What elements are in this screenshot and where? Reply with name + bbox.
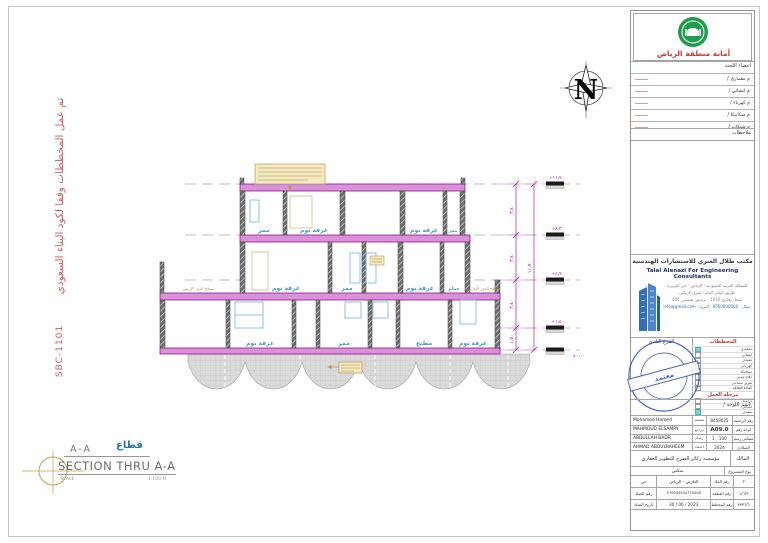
code-compliance-note: تم عمل المخططات وفقا لكود البناء السعودي [54,70,66,322]
parcel-value: ١/٦/٣ [733,488,754,498]
scale-value: 1:100 M [148,477,166,482]
parcel-row: حي العارض - الرياض رقم البلك ٢ [631,476,754,487]
level-markers: +١١٫٧٠ +٨٫٣٠ +٤٫٩٠ +١٫٥٠ ±٠٫٠٠ [546,175,585,359]
municipality-logo-icon [677,16,709,48]
signature-line [635,115,648,116]
room-label: حمام [448,287,459,292]
personnel-row: ABDULLAH BADR رسام 1 : 100 مقياس رسم [631,434,754,443]
person-name: MAHMOUD ELSAMRY [631,426,692,434]
parcel-label: رقم الصك [631,488,656,498]
checklist-label: كفاءة الطاقة [733,386,752,390]
meta-label: لوحة رقم [732,426,754,434]
owner-label: المالك [730,451,754,466]
address-line: المملكة العربية السعودية - الرياض - حي ا… [661,282,753,289]
note-box-mid [370,256,384,265]
owner-row: مؤسسة ركائز الصرح للتطوير العقاري المالك [631,450,754,466]
dimension-lines: ٣٫٤٠ ٣٫٤٠ ٣٫٤٠ ١٫٥٠ ١١٫٧٠ [502,181,538,353]
room-label: ممر [340,285,353,292]
project-type-row: سكني نوع المشروع [631,466,754,475]
project-type-value: سكني [631,467,724,475]
dim-total-text: ١١٫٧٠ [527,261,533,273]
meta-label: رقم الرخصة [732,416,754,425]
person-name: Mohamed Hamed [631,416,692,425]
personnel-row: MAHMOUD ELSAMRY مراجع A09.0 لوحة رقم [631,425,754,434]
sheet-number: A09.0 [706,426,732,434]
sbc-code-ref: SBC-1101 [55,319,65,383]
checklist-label: تقرير مساحي [732,381,752,385]
notes-area [631,140,754,254]
municipality-name: أمانة منطقة الرياض [634,49,753,58]
room-label: ممر [448,229,458,234]
checklist-label: تنفيذي [742,358,752,362]
checklist-label: دفاع مدني [736,375,752,379]
level-text: ±٠٫٠٠ [572,353,585,359]
level-text: +١١٫٧٠ [549,175,564,181]
dim-text: ١٫٥٠ [509,334,515,344]
committee-role: م ميكانيكا / [727,113,750,118]
dim-text: ٣٫٤٠ [509,204,515,214]
consultant-name-en: Talal Alenazi For Engineering Consultant… [631,268,754,280]
room-label: غرفة نوم [246,340,274,347]
parcel-label: رقم القطعة [710,488,732,498]
committee-row: م معماري / [631,73,754,85]
address-line: جوال : 0550000000 - البريد : info@gmail.… [661,303,753,310]
owner-name: مؤسسة ركائز الصرح للتطوير العقاري [631,451,730,466]
signature-line [635,91,648,92]
signature-line [635,103,648,104]
address-line: طريق الحاير العام - شرق الرياض [661,289,753,296]
scale-label: SCALE : [60,477,77,482]
level-text: +٨٫٣٠ [551,226,564,232]
address-line: سجل تجاري 1010 - ترخيص هندسي 404 [661,296,753,303]
dim-text: ٣٫٤٠ [509,252,515,262]
checklist-label: معماري [741,347,752,351]
meta-value: B409025 [706,416,732,425]
person-role: رسام [692,435,706,443]
section-ref: A-A [70,444,92,455]
level-text: +١٫٥٠ [551,319,564,325]
room-label: غرفة نوم [459,340,487,347]
level-text: +٤٫٩٠ [551,271,564,277]
building-section-drawing: ممر غرفة نوم غرفة نوم ممر غرفة نوم ممر غ… [140,150,640,450]
room-label: غرفة نوم [272,285,300,292]
parcel-label: رقم البلك [710,476,732,487]
checklist-label: ميكانيكا [741,370,752,374]
roof-label-left: سطح الدور الأرضي [182,286,215,291]
title-divider [64,456,150,457]
consultant-name-ar: مكتب طلال العنزي للاستشارات الهندسية [631,258,754,265]
committee-row: م انشائي / [631,85,754,97]
personnel-table: Mohamed Hamed مصمم B409025 رقم الرخصة MA… [631,415,754,450]
committee-header: اعضاء اللجنة [631,61,754,73]
room-label: غرفة نوم [406,285,434,292]
person-role: مصمم [692,416,706,425]
room-label: ممر [257,227,270,234]
person-role: مراجع [692,426,706,434]
room-label: غرفة نوم [410,227,438,234]
section-title-arabic: قطاع [116,440,143,451]
parcel-value: ٢ [733,476,754,487]
drawing-sheet: { "page": { "left_note": "تم عمل المخططا… [0,0,768,543]
room-label: ممر [337,340,350,347]
parcel-value: 370044554770008 [656,488,710,498]
roof-label-right: سطح الدور الأول [471,286,500,291]
municipality-box: أمانة منطقة الرياض [633,13,752,61]
parcel-value: العارض - الرياض [656,476,710,487]
parcel-row: رقم الصك 370044554770008 رقم القطعة ١/٦/… [631,487,754,498]
project-type-label: نوع المشروع [724,467,754,475]
notes-label: ملاحظات [631,128,754,140]
committee-role: م كهرباء / [730,101,750,106]
committee-role: م معماري / [727,77,750,82]
consultant-address: المملكة العربية السعودية - الرياض - حي ا… [661,282,753,310]
room-label: غرفة نوم [300,227,328,234]
consultant-box: مكتب طلال العنزي للاستشارات الهندسية Tal… [631,254,754,337]
signature-line [635,79,648,80]
title-divider-2 [58,474,176,475]
north-letter: N [574,75,599,106]
drawing-scale: 1 : 100 [706,435,732,443]
section-title-english: SECTION THRU A-A [58,459,175,473]
committee-row: م ميكانيكا / [631,109,754,121]
title-block: أمانة منطقة الرياض اعضاء اللجنة م معماري… [630,10,755,531]
personnel-row: Mohamed Hamed مصمم B409025 رقم الرخصة [631,416,754,425]
parcel-label: حي [631,476,656,487]
committee-role: م انشائي / [729,89,750,94]
sheet-name-row: اسم اللوحة / [631,399,754,415]
committee-row: م كهرباء / [631,97,754,109]
committee-table: م معماري / م انشائي / م كهرباء / م ميكان… [631,73,754,133]
person-name: ABDULLAH BADR [631,435,692,443]
dim-text: ٣٫٤٠ [509,299,515,309]
checklist-label: كهربائي [741,364,752,368]
titleblock-footer-line [631,509,754,510]
checklist-label: انشائي [742,353,752,357]
meta-label: مقياس رسم [732,435,754,443]
north-arrow: N [558,60,614,124]
parcel-table: حي العارض - الرياض رقم البلك ٢ رقم الصك … [631,475,754,509]
consultant-logo-icon [637,281,661,333]
room-label: مطبخ [416,340,433,347]
